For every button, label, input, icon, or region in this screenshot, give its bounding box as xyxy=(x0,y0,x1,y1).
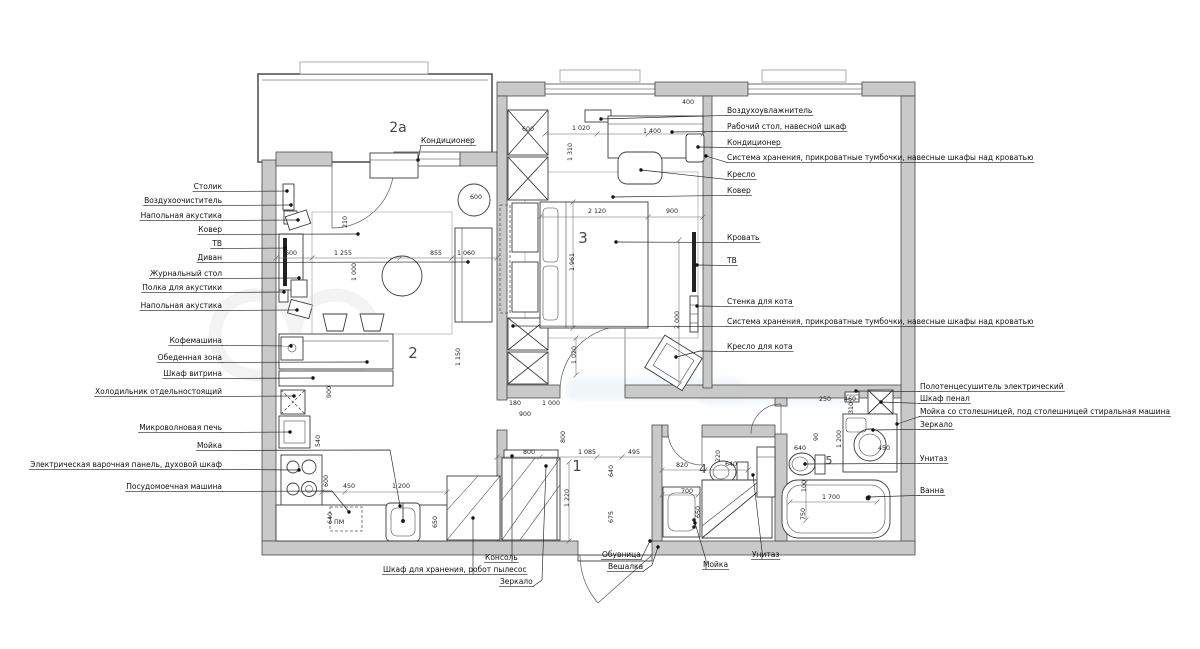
annotation-label: Посудомоечная машина xyxy=(126,482,222,491)
ac-unit-bedroom xyxy=(686,134,704,162)
leader-dot xyxy=(693,521,696,524)
leader-dot xyxy=(867,495,870,498)
wall-segment xyxy=(262,541,578,555)
leader-dot xyxy=(356,232,359,235)
annotation-label: Электрическая варочная панель, духовой ш… xyxy=(30,460,222,469)
dimension-text: 1 000 xyxy=(351,263,358,281)
annotation-label: Ковер xyxy=(198,225,222,234)
dimension-text: 450 xyxy=(878,445,890,452)
annotation-label: Кресло xyxy=(727,170,756,179)
leader-dot xyxy=(544,464,547,467)
leader-dot xyxy=(283,246,286,249)
window-sill xyxy=(762,70,846,82)
dimension-text: 600 xyxy=(470,194,482,201)
dimension-text: 1 020 xyxy=(571,346,578,364)
leader-dot xyxy=(285,189,288,192)
leader-dot xyxy=(639,168,642,171)
wall-segment xyxy=(497,96,507,400)
room-number: 5 xyxy=(826,454,833,467)
wall-segment xyxy=(507,385,560,398)
annotation-label: Журнальный стол xyxy=(150,269,222,278)
dimension-text: 640 xyxy=(794,445,806,452)
leader-dot xyxy=(471,516,474,519)
ac-unit-living xyxy=(370,153,418,178)
dimension-text: 855 xyxy=(430,250,442,257)
wall-segment xyxy=(262,160,276,541)
annotation-label: Шкаф для хранения, робот пылесос xyxy=(383,565,527,574)
dimension-text: 495 xyxy=(628,449,640,456)
leader-dot xyxy=(879,400,882,403)
leader-dot xyxy=(288,430,291,433)
wall-segment xyxy=(862,82,915,96)
dimension-text: 1 255 xyxy=(334,250,352,257)
dimension-text: 90 xyxy=(813,433,820,441)
annotation-label: Кресло для кота xyxy=(727,342,793,351)
annotation-label: Унитаз xyxy=(752,550,779,559)
leader-dot xyxy=(296,218,299,221)
dimension-text: 600 xyxy=(285,250,297,257)
humidifier xyxy=(585,110,611,122)
dimension-text: 210 xyxy=(342,216,349,228)
leader-dot xyxy=(295,308,298,311)
dimension-text: 640 xyxy=(327,512,334,524)
room-number: 2 xyxy=(408,344,418,362)
dimension-text: 600 xyxy=(323,475,330,487)
dimension-text: 1 400 xyxy=(643,128,661,135)
desk-chair xyxy=(618,152,662,184)
dimension-text: 2 120 xyxy=(588,208,606,215)
annotation-label: Полка для акустики xyxy=(142,283,222,292)
display-cabinet xyxy=(279,371,393,386)
leader-dot xyxy=(365,360,368,363)
annotation-label: Кондиционер xyxy=(727,138,781,147)
wall-segment xyxy=(276,152,332,166)
leader-dot xyxy=(614,240,617,243)
annotation-label: Ковер xyxy=(727,186,751,195)
dimension-text: 1 220 xyxy=(564,489,571,507)
dimension-text: 1 961 xyxy=(569,253,576,271)
leader-dot xyxy=(292,394,295,397)
annotation-label: Мойка xyxy=(197,441,222,450)
water-heater xyxy=(757,447,775,497)
wall-segment xyxy=(652,541,915,555)
dimension-text: 800 xyxy=(560,431,567,443)
hob-oven xyxy=(281,455,322,505)
leader-dot xyxy=(751,473,754,476)
leader-dot xyxy=(510,454,513,457)
room-number: 2a xyxy=(389,120,407,136)
balcony-outline xyxy=(258,74,492,162)
dimension-text: 750 xyxy=(800,508,807,520)
window-sill xyxy=(560,70,640,82)
bathroom4-door-arc xyxy=(668,431,702,465)
annotation-label: Мойка со столешницей, под столешницей ст… xyxy=(920,407,1170,416)
dimension-text: 540 xyxy=(315,435,322,447)
leader-line xyxy=(641,541,650,559)
sofa xyxy=(455,228,492,322)
annotation-label: Обувница xyxy=(602,550,641,559)
annotation-label: Столик xyxy=(194,182,223,191)
dimension-text: 1 200 xyxy=(836,430,843,448)
leader-dot xyxy=(511,324,514,327)
annotation-label: Мойка xyxy=(703,560,728,569)
annotation-label: Полотенцесушитель электрический xyxy=(920,382,1064,391)
dimension-text: 180 xyxy=(509,400,521,407)
leader-dot xyxy=(611,195,614,198)
toilet-5-tank xyxy=(815,455,825,474)
window-sill xyxy=(300,62,428,74)
dimension-text: 1 060 xyxy=(457,250,475,257)
dimension-text: 800 xyxy=(523,449,535,456)
annotation-label: Унитаз xyxy=(920,454,947,463)
wall-segment xyxy=(652,425,662,541)
dimension-text: 900 xyxy=(666,208,678,215)
dining-stool xyxy=(360,314,384,331)
dimension-text: 700 xyxy=(681,488,693,495)
annotation-label: Кондиционер xyxy=(421,136,475,145)
leader-dot xyxy=(311,376,314,379)
leader-dot xyxy=(670,130,673,133)
annotations-layer: СтоликВоздухоочистительНапольная акустик… xyxy=(29,106,1171,586)
annotation-label: Стенка для кота xyxy=(727,297,793,306)
dimension-text: 1 310 xyxy=(567,143,574,161)
dimension-text: 640 xyxy=(725,461,737,468)
dining-stool xyxy=(323,314,347,331)
dimension-text: 820 xyxy=(676,462,688,469)
room-number: 1 xyxy=(572,457,582,475)
annotation-label: Рабочий стол, навесной шкаф xyxy=(727,122,846,131)
dimension-text: 400 xyxy=(682,99,694,106)
dimension-text: 1 000 xyxy=(542,400,560,407)
leader-dot xyxy=(895,422,898,425)
dimension-text: 650 xyxy=(695,506,702,518)
leader-dot xyxy=(803,462,806,465)
wall-segment xyxy=(625,385,901,398)
dimension-text: 900 xyxy=(519,411,531,418)
leader-dot xyxy=(648,539,651,542)
annotation-label: Микроволновая печь xyxy=(139,423,222,432)
leader-dot xyxy=(347,510,350,513)
dimension-text: 1 020 xyxy=(572,125,590,132)
annotation-label: Обеденная зона xyxy=(158,353,222,362)
dimension-text: 1 150 xyxy=(455,348,462,366)
leader-dot xyxy=(871,428,874,431)
annotation-label: ТВ xyxy=(211,239,222,248)
room-number: 3 xyxy=(578,229,588,247)
wall-segment xyxy=(662,425,668,437)
annotation-label: Зеркало xyxy=(500,577,533,586)
annotation-label: Напольная акустика xyxy=(141,211,222,220)
tv-bedroom xyxy=(692,232,696,292)
leader-dot xyxy=(398,504,401,507)
leader-dot xyxy=(696,145,699,148)
dimension-text: 310 xyxy=(848,402,855,414)
wall-segment xyxy=(655,82,748,96)
dimension-text: 450 xyxy=(343,483,355,490)
leader-dot xyxy=(289,203,292,206)
leader-dot xyxy=(466,260,469,263)
leader-dot xyxy=(289,344,292,347)
leader-dot xyxy=(416,158,419,161)
annotation-label: Холодильник отдельностоящий xyxy=(95,387,222,396)
entrance-door-arc xyxy=(580,555,598,603)
side-table xyxy=(283,184,294,210)
dimension-text: 1 085 xyxy=(578,449,596,456)
wall-segment xyxy=(460,152,497,166)
leader-dot xyxy=(599,117,602,120)
leader-dot xyxy=(282,290,285,293)
annotation-label: Консоль xyxy=(485,553,518,562)
dimension-text: 250 xyxy=(819,396,831,403)
coffee-table xyxy=(291,280,307,297)
dimension-text: 900 xyxy=(326,386,333,398)
annotation-label: Напольная акустика xyxy=(141,301,222,310)
annotation-label: Кровать xyxy=(727,233,759,242)
annotation-label: Система хранения, прикроватные тумбочки,… xyxy=(727,153,1033,162)
leader-dot xyxy=(674,355,677,358)
annotation-label: Кофемашина xyxy=(170,336,222,345)
kitchen-counter xyxy=(276,505,447,541)
annotation-label: Диван xyxy=(197,253,222,262)
leader-dot xyxy=(297,276,300,279)
dimension-text: 220 xyxy=(715,450,722,462)
dimension-text: 1 200 xyxy=(392,483,410,490)
annotation-label: Шкаф пенал xyxy=(920,394,970,403)
dimension-text: 640 xyxy=(608,465,615,477)
wall-segment xyxy=(702,425,775,437)
dimension-text: 650 xyxy=(432,516,439,528)
annotation-label: Зеркало xyxy=(920,420,953,429)
dimension-text: 675 xyxy=(608,511,615,523)
dimension-text: 100 xyxy=(801,480,808,492)
bedside-unit xyxy=(512,262,538,312)
annotation-label: ТВ xyxy=(726,256,737,265)
annotation-label: Ванна xyxy=(920,486,944,495)
floor-plan-drawing: 4001 0201 4006002 1209001 9612 0001 0201… xyxy=(0,0,1200,649)
dimension-text: 600 xyxy=(522,126,534,133)
bathtub xyxy=(782,480,890,538)
room-number: 4 xyxy=(699,462,707,476)
wall-segment xyxy=(497,82,545,96)
leader-dot xyxy=(656,545,659,548)
leader-dot xyxy=(704,154,707,157)
annotation-label: Воздухоочиститель xyxy=(144,196,222,205)
annotation-label: Шкаф витрина xyxy=(163,369,222,378)
annotation-label: Воздухоувлажнитель xyxy=(727,106,812,115)
misc-text: ПМ xyxy=(334,519,344,526)
leader-dot xyxy=(695,304,698,307)
annotation-label: Система хранения, прикроватные тумбочки,… xyxy=(727,317,1033,326)
annotation-label: Вешалка xyxy=(608,562,643,571)
dimension-text: 1 700 xyxy=(822,494,840,501)
leader-dot xyxy=(695,263,698,266)
bed xyxy=(540,202,648,328)
leader-dot xyxy=(297,468,300,471)
leader-dot xyxy=(854,389,857,392)
dimension-text: 460 xyxy=(844,396,856,403)
bedside-unit xyxy=(512,203,538,252)
coffee-machine xyxy=(281,337,303,360)
